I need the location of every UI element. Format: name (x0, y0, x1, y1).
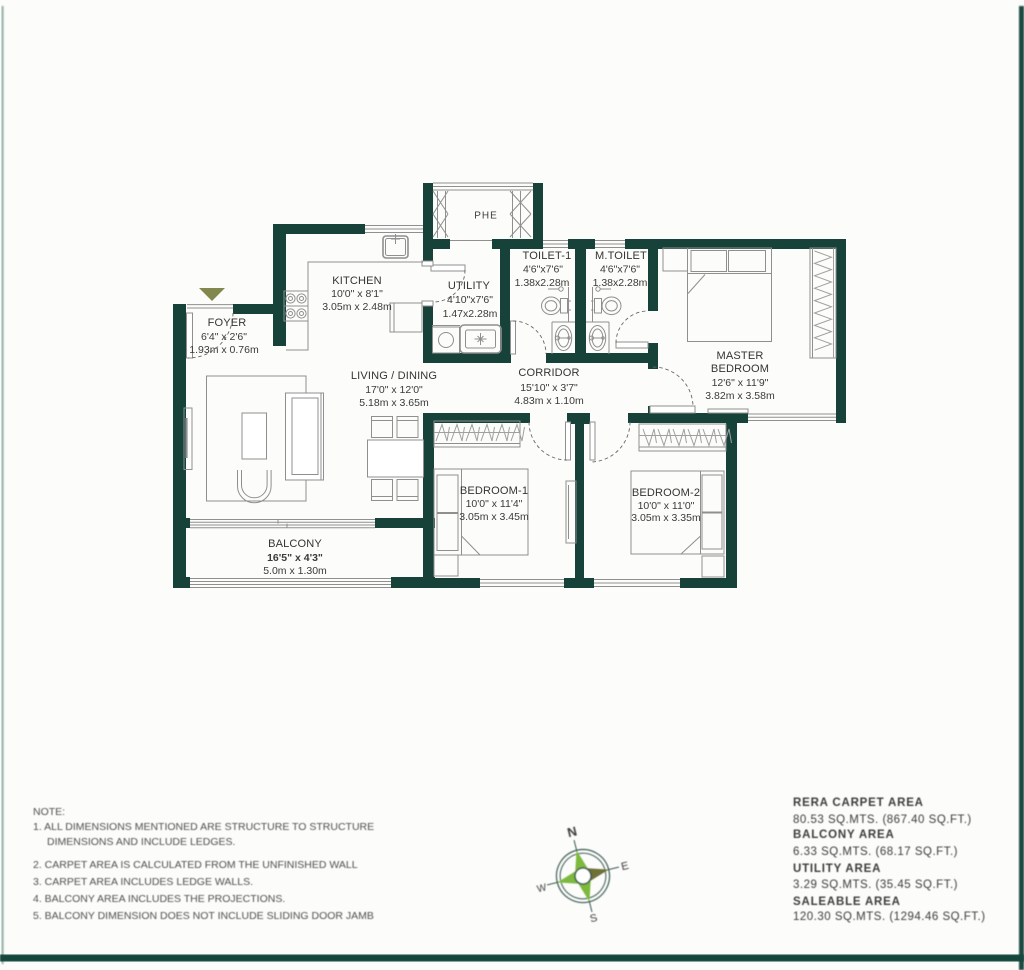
svg-text:1.38x2.28m: 1.38x2.28m (515, 277, 570, 289)
svg-text:KITCHEN: KITCHEN (332, 275, 382, 287)
svg-text:10'0" x 8'1": 10'0" x 8'1" (331, 288, 383, 300)
svg-text:4. BALCONY AREA INCLUDES THE P: 4. BALCONY AREA INCLUDES THE PROJECTIONS… (33, 893, 285, 905)
svg-text:4'10"x7'6": 4'10"x7'6" (447, 294, 493, 306)
svg-text:PHE: PHE (474, 211, 498, 222)
svg-text:BALCONY AREA: BALCONY AREA (793, 829, 895, 841)
svg-text:M.TOILET: M.TOILET (595, 250, 647, 262)
svg-text:10'0" x 11'4": 10'0" x 11'4" (466, 498, 523, 510)
svg-text:6.33 SQ.MTS. (68.17 SQ.FT.): 6.33 SQ.MTS. (68.17 SQ.FT.) (793, 846, 958, 858)
svg-text:UTILITY: UTILITY (448, 280, 491, 292)
svg-text:4'6"x7'6": 4'6"x7'6" (600, 264, 640, 276)
svg-text:3. CARPET AREA INCLUDES LEDGE: 3. CARPET AREA INCLUDES LEDGE WALLS. (33, 876, 253, 888)
svg-text:3.05m x 2.48m: 3.05m x 2.48m (322, 301, 392, 313)
svg-text:NOTE:: NOTE: (33, 806, 65, 818)
svg-text:120.30 SQ.MTS. (1294.46 SQ.FT.: 120.30 SQ.MTS. (1294.46 SQ.FT.) (793, 911, 986, 923)
svg-text:2. CARPET AREA IS CALCULATED F: 2. CARPET AREA IS CALCULATED FROM THE UN… (33, 859, 358, 871)
svg-text:3.29 SQ.MTS. (35.45 SQ.FT.): 3.29 SQ.MTS. (35.45 SQ.FT.) (793, 879, 958, 891)
svg-text:16'5" x 4'3": 16'5" x 4'3" (267, 552, 323, 564)
svg-text:15'10" x 3'7": 15'10" x 3'7" (520, 382, 578, 394)
svg-text:5.18m x 3.65m: 5.18m x 3.65m (359, 397, 429, 409)
svg-text:6'4" x 2'6": 6'4" x 2'6" (201, 331, 247, 343)
svg-text:3.82m x 3.58m: 3.82m x 3.58m (705, 390, 775, 402)
svg-text:BEDROOM: BEDROOM (711, 363, 769, 375)
svg-text:1. ALL DIMENSIONS MENTIONED AR: 1. ALL DIMENSIONS MENTIONED ARE STRUCTUR… (33, 821, 374, 833)
svg-text:4'6"x7'6": 4'6"x7'6" (523, 264, 563, 276)
svg-text:1.93m x 0.76m: 1.93m x 0.76m (189, 344, 259, 356)
svg-text:TOILET-1: TOILET-1 (523, 250, 572, 262)
svg-text:10'0" x 11'0": 10'0" x 11'0" (638, 500, 695, 512)
svg-text:SALEABLE AREA: SALEABLE AREA (793, 896, 901, 908)
svg-text:FOYER: FOYER (208, 317, 247, 329)
svg-text:CORRIDOR: CORRIDOR (518, 367, 579, 379)
svg-text:LIVING / DINING: LIVING / DINING (351, 370, 437, 382)
svg-text:MASTER: MASTER (717, 350, 764, 362)
svg-text:3.05m x 3.45m: 3.05m x 3.45m (459, 511, 529, 523)
svg-text:80.53 SQ.MTS. (867.40 SQ.FT.): 80.53 SQ.MTS. (867.40 SQ.FT.) (793, 814, 972, 826)
svg-text:BEDROOM-2: BEDROOM-2 (632, 487, 700, 499)
svg-text:1.47x2.28m: 1.47x2.28m (443, 308, 498, 320)
svg-text:17'0" x 12'0": 17'0" x 12'0" (365, 384, 423, 396)
svg-text:4.83m x 1.10m: 4.83m x 1.10m (514, 395, 584, 407)
svg-text:UTILITY AREA: UTILITY AREA (793, 863, 881, 875)
svg-text:1.38x2.28m: 1.38x2.28m (593, 277, 648, 289)
svg-text:RERA CARPET AREA: RERA CARPET AREA (793, 797, 924, 809)
svg-text:DIMENSIONS AND INCLUDE LEDGES.: DIMENSIONS AND INCLUDE LEDGES. (47, 836, 235, 848)
svg-text:5. BALCONY DIMENSION DOES NOT: 5. BALCONY DIMENSION DOES NOT INCLUDE SL… (33, 910, 374, 922)
svg-text:12'6" x 11'9": 12'6" x 11'9" (712, 377, 769, 389)
svg-text:BALCONY: BALCONY (268, 538, 322, 550)
svg-text:5.0m x 1.30m: 5.0m x 1.30m (263, 565, 327, 577)
svg-text:BEDROOM-1: BEDROOM-1 (460, 485, 528, 497)
svg-text:3.05m x 3.35m: 3.05m x 3.35m (631, 512, 701, 524)
